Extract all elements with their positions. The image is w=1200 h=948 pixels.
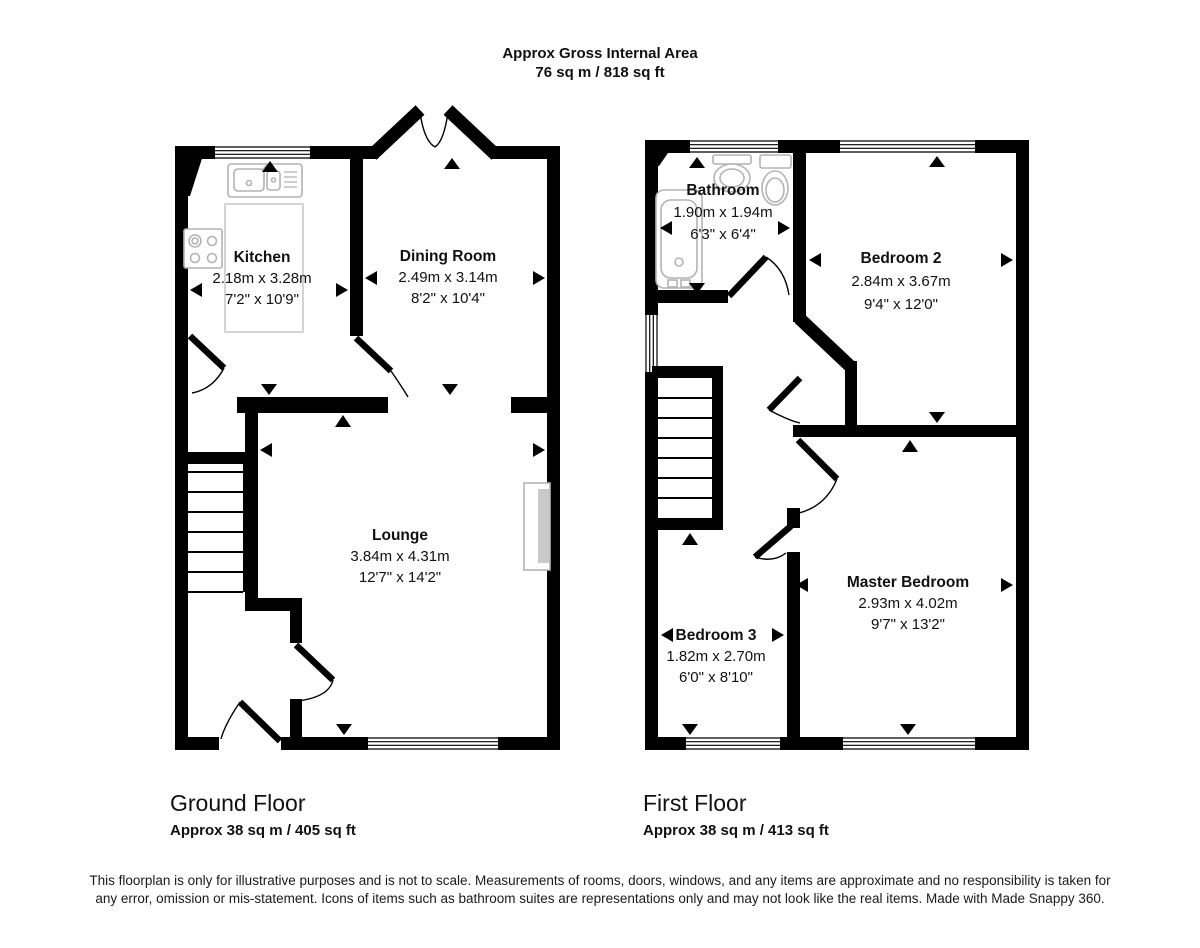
- hob-icon: [184, 229, 222, 268]
- room-imperial: 8'2" x 10'4": [411, 290, 485, 307]
- first-floor-stairs: [652, 366, 723, 530]
- room-label-dining-room: Dining Room 2.49m x 3.14m 8'2" x 10'4": [398, 248, 497, 307]
- bedroom3-door: [755, 526, 791, 559]
- lounge-door: [296, 645, 333, 701]
- room-name: Dining Room: [400, 248, 496, 265]
- first-floor-label: First Floor: [643, 790, 747, 817]
- ground-floor-area: Approx 38 sq m / 405 sq ft: [170, 822, 356, 839]
- room-metric: 3.84m x 4.31m: [350, 548, 449, 565]
- bedroom2-window: [840, 140, 975, 153]
- ground-floor-stairs: [180, 452, 246, 592]
- room-name: Bedroom 2: [861, 250, 942, 267]
- room-metric: 2.93m x 4.02m: [858, 595, 957, 612]
- room-metric: 1.82m x 2.70m: [666, 648, 765, 665]
- room-label-kitchen: Kitchen 2.18m x 3.28m 7'2" x 10'9": [212, 249, 311, 308]
- room-imperial: 9'4" x 12'0": [864, 296, 938, 313]
- first-floor-area: Approx 38 sq m / 413 sq ft: [643, 822, 829, 839]
- room-imperial: 7'2" x 10'9": [225, 291, 299, 308]
- french-doors: [420, 112, 448, 147]
- room-metric: 2.84m x 3.67m: [851, 273, 950, 290]
- floorplan-page: Approx Gross Internal Area 76 sq m / 818…: [0, 0, 1200, 948]
- room-name: Bedroom 3: [676, 627, 757, 644]
- fireplace-icon: [524, 483, 550, 570]
- room-name: Kitchen: [234, 249, 291, 266]
- ground-floor-label: Ground Floor: [170, 790, 306, 817]
- master-bedroom-window: [843, 737, 975, 750]
- lounge-window: [368, 737, 498, 750]
- bedroom3-window: [686, 737, 780, 750]
- room-label-bedroom3: Bedroom 3 1.82m x 2.70m 6'0" x 8'10": [666, 627, 765, 686]
- front-door: [219, 702, 281, 750]
- room-imperial: 12'7" x 14'2": [359, 569, 441, 586]
- kitchen-door: [190, 336, 224, 393]
- ground-floor-measure-arrows: [190, 158, 545, 735]
- room-label-master-bedroom: Master Bedroom 2.93m x 4.02m 9'7" x 13'2…: [847, 574, 969, 633]
- room-metric: 2.49m x 3.14m: [398, 269, 497, 286]
- room-metric: 2.18m x 3.28m: [212, 270, 311, 287]
- room-label-lounge: Lounge 3.84m x 4.31m 12'7" x 14'2": [350, 527, 449, 586]
- room-name: Bathroom: [686, 182, 759, 199]
- kitchen-window: [215, 146, 310, 159]
- bathroom-window: [690, 140, 778, 153]
- room-name: Lounge: [372, 527, 428, 544]
- dining-room-door: [356, 338, 408, 397]
- toilet-icon: [760, 155, 791, 205]
- room-imperial: 6'3" x 6'4": [690, 226, 756, 243]
- master-bedroom-door: [798, 440, 837, 513]
- ground-floor-plan: Kitchen 2.18m x 3.28m 7'2" x 10'9" Dinin…: [175, 110, 560, 750]
- disclaimer-text: This floorplan is only for illustrative …: [78, 872, 1122, 907]
- ground-floor-walls: [175, 110, 560, 750]
- room-metric: 1.90m x 1.94m: [673, 204, 772, 221]
- room-label-bedroom2: Bedroom 2 2.84m x 3.67m 9'4" x 12'0": [851, 250, 950, 313]
- first-floor-plan: Bathroom 1.90m x 1.94m 6'3" x 6'4" Bedro…: [645, 140, 1029, 750]
- room-imperial: 9'7" x 13'2": [871, 616, 945, 633]
- bedroom2-door: [769, 378, 800, 423]
- kitchen-counter: [225, 204, 303, 332]
- landing-window: [645, 315, 658, 372]
- room-imperial: 6'0" x 8'10": [679, 669, 753, 686]
- bathroom-door: [729, 257, 789, 296]
- room-name: Master Bedroom: [847, 574, 969, 591]
